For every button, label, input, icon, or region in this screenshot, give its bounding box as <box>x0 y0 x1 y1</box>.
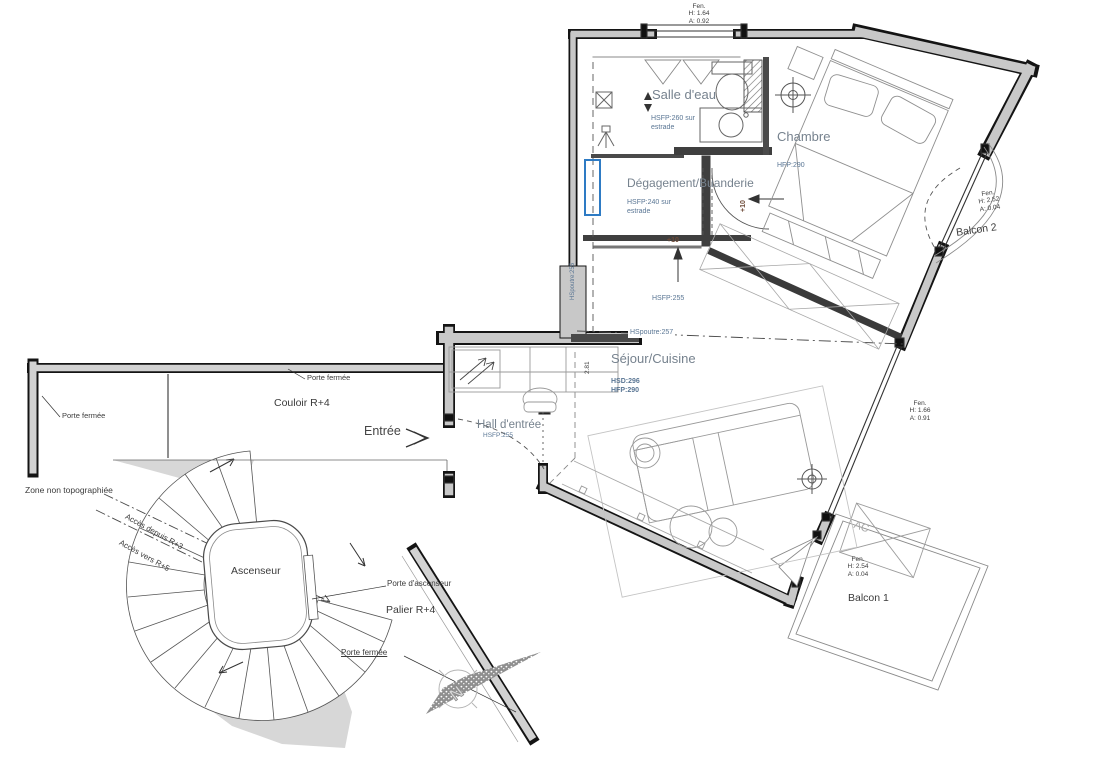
room-label-salle-deau: Salle d'eau <box>652 88 716 103</box>
note-hall: HSFP:255 <box>483 432 513 440</box>
room-label-degagement: Dégagement/Buanderie <box>627 177 754 191</box>
appliance-arrows-icon <box>452 350 500 388</box>
porte-fermee-corridor: Porte fermée <box>307 374 350 383</box>
zone-non-topographiee-label: Zone non topographiée <box>25 486 113 496</box>
nightstand <box>788 46 823 79</box>
room-label-couloir: Couloir R+4 <box>274 397 330 409</box>
note-hsfp255: HSFP:255 <box>652 295 684 304</box>
construction-lines <box>543 62 903 485</box>
window-label-balcon1: Fen.H: 2.54A: 0.04 <box>835 556 881 578</box>
room-label-sejour: Séjour/Cuisine <box>611 352 696 367</box>
porte-fermee-left: Porte fermée <box>62 412 105 421</box>
level-plus10-door: +10 <box>740 200 748 212</box>
floor-plan-drawing: N <box>0 0 1110 757</box>
survey-target-chambre <box>775 77 811 113</box>
window-label-sejour: Fen.H: 1.66A: 0.91 <box>895 400 945 422</box>
kitchen-counter <box>449 347 764 573</box>
bathroom-fixtures <box>596 62 762 148</box>
window-label-top: Fen.H: 1.64A: 0.92 <box>666 3 732 25</box>
interior-partitions <box>575 57 898 338</box>
elevator-shaft <box>201 517 321 652</box>
estrade-arrows-icon <box>644 92 652 112</box>
note-salle-deau: HSFP:260 surestrade <box>651 115 695 133</box>
entree-label: Entrée <box>364 424 401 438</box>
note-degagement: HSFP:240 surestrade <box>627 199 671 217</box>
room-label-ascenseur: Ascenseur <box>231 565 281 577</box>
porte-ascenseur-label: Porte d'ascenseur <box>387 579 451 588</box>
apartment-walls <box>443 31 1032 602</box>
entree-arrow-icon <box>406 429 428 447</box>
porte-fermee-palier: Porte fermée <box>341 648 387 657</box>
balcony2-door-arc <box>925 168 960 250</box>
bathroom-folding-door <box>645 60 681 84</box>
survey-target-sejour <box>797 464 827 494</box>
floor-plan: N Fen.H: 1.64A: 0.92 Salle d'eau HSFP:26… <box>0 0 1110 757</box>
highlighted-appliance <box>585 160 600 215</box>
room-label-hall: Hall d'entrée <box>477 419 541 432</box>
pouf <box>670 506 712 548</box>
room-label-chambre: Chambre <box>777 130 830 145</box>
dim-281: 2.81 <box>584 361 591 374</box>
note-chambre: HFP:290 <box>777 162 805 171</box>
wardrobe <box>700 224 899 349</box>
note-hspoutre-vertical: HSpoutre:255 <box>570 263 578 300</box>
note-sejour: HSD:296HFP:290 <box>611 378 640 396</box>
doors <box>458 60 960 586</box>
room-label-balcon1: Balcon 1 <box>848 592 889 604</box>
note-hspoutre257: HSpoutre:257 <box>628 329 675 338</box>
room-label-palier: Palier R+4 <box>386 604 435 616</box>
level-plus10-estrade: +10 <box>667 237 679 245</box>
